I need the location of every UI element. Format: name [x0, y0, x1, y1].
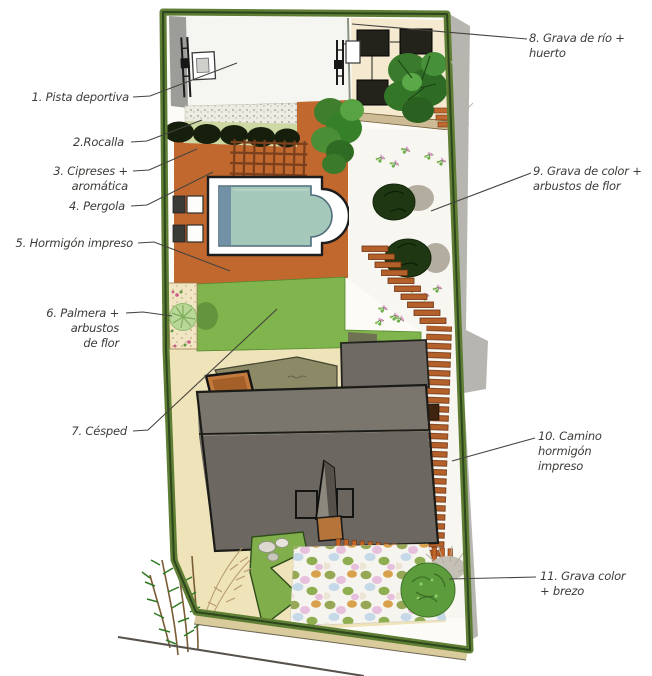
annotation-2: 2.Rocalla [73, 135, 124, 150]
landscape-plan: 1. Pista deportiva 2.Rocalla 3. Cipreses… [0, 0, 652, 676]
annotation-9: 9. Grava de color + arbustos de flor [533, 164, 642, 194]
annotation-8: 8. Grava de río + huerto [529, 31, 652, 61]
rockery [185, 103, 297, 124]
street-line [118, 637, 364, 676]
annotation-6: 6. Palmera + arbustos de flor [0, 306, 119, 352]
annotation-4: 4. Pergola [69, 199, 125, 214]
annotation-5: 5. Hormigón impreso [16, 236, 133, 251]
annotation-7: 7. Césped [71, 424, 127, 439]
annotation-10: 10. Camino hormigón impreso [538, 429, 652, 475]
annotation-11: 11. Grava color + brezo [540, 569, 625, 599]
house-annex [341, 340, 429, 389]
annotation-3: 3. Cipreses + aromática [0, 164, 128, 194]
swimming-pool [208, 177, 349, 255]
house-roof [197, 340, 438, 551]
palm-bed [168, 283, 197, 349]
annotation-1: 1. Pista deportiva [32, 90, 129, 105]
